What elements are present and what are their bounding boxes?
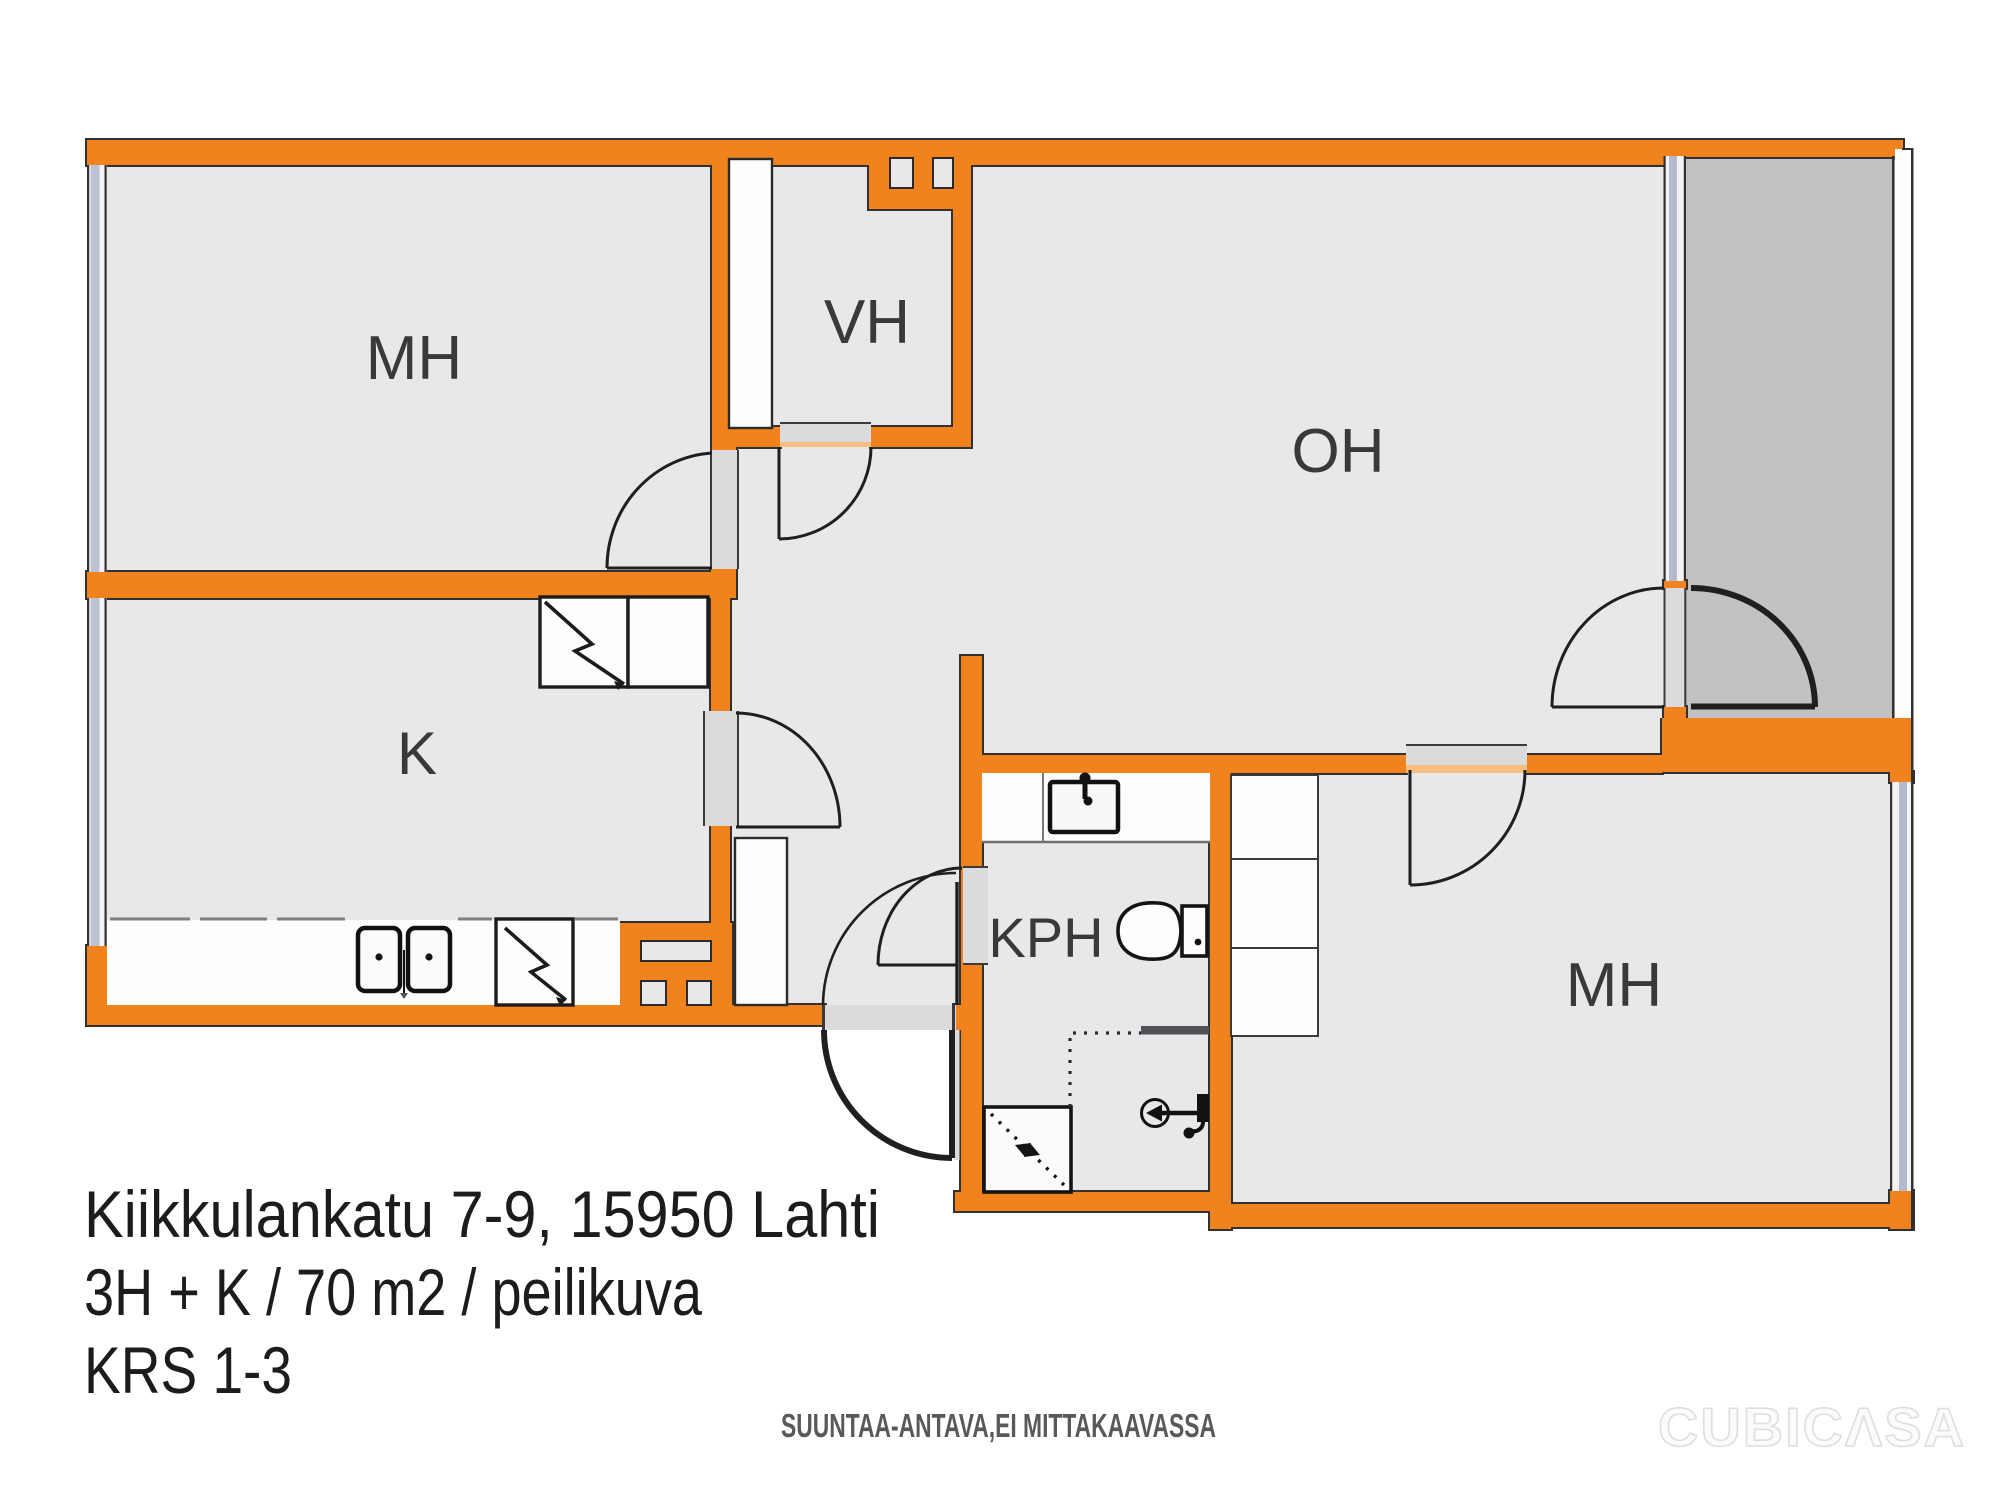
- svg-text:OH: OH: [1292, 417, 1385, 486]
- svg-text:KPH: KPH: [988, 906, 1103, 969]
- svg-text:Kiikkulankatu 7-9, 15950 Lahti: Kiikkulankatu 7-9, 15950 Lahti: [84, 1177, 880, 1251]
- svg-text:MH: MH: [366, 324, 462, 393]
- svg-text:KRS 1-3: KRS 1-3: [84, 1333, 292, 1407]
- svg-text:VH: VH: [824, 288, 910, 357]
- svg-text:SUUNTAA-ANTAVA,EI MITTAKAAVASS: SUUNTAA-ANTAVA,EI MITTAKAAVASSA: [781, 1407, 1216, 1444]
- svg-text:3H + K / 70 m2 / peilikuva: 3H + K / 70 m2 / peilikuva: [84, 1255, 702, 1329]
- svg-text:CUBICΛSA: CUBICΛSA: [1658, 1396, 1966, 1458]
- svg-text:K: K: [397, 720, 437, 787]
- svg-text:MH: MH: [1566, 951, 1662, 1020]
